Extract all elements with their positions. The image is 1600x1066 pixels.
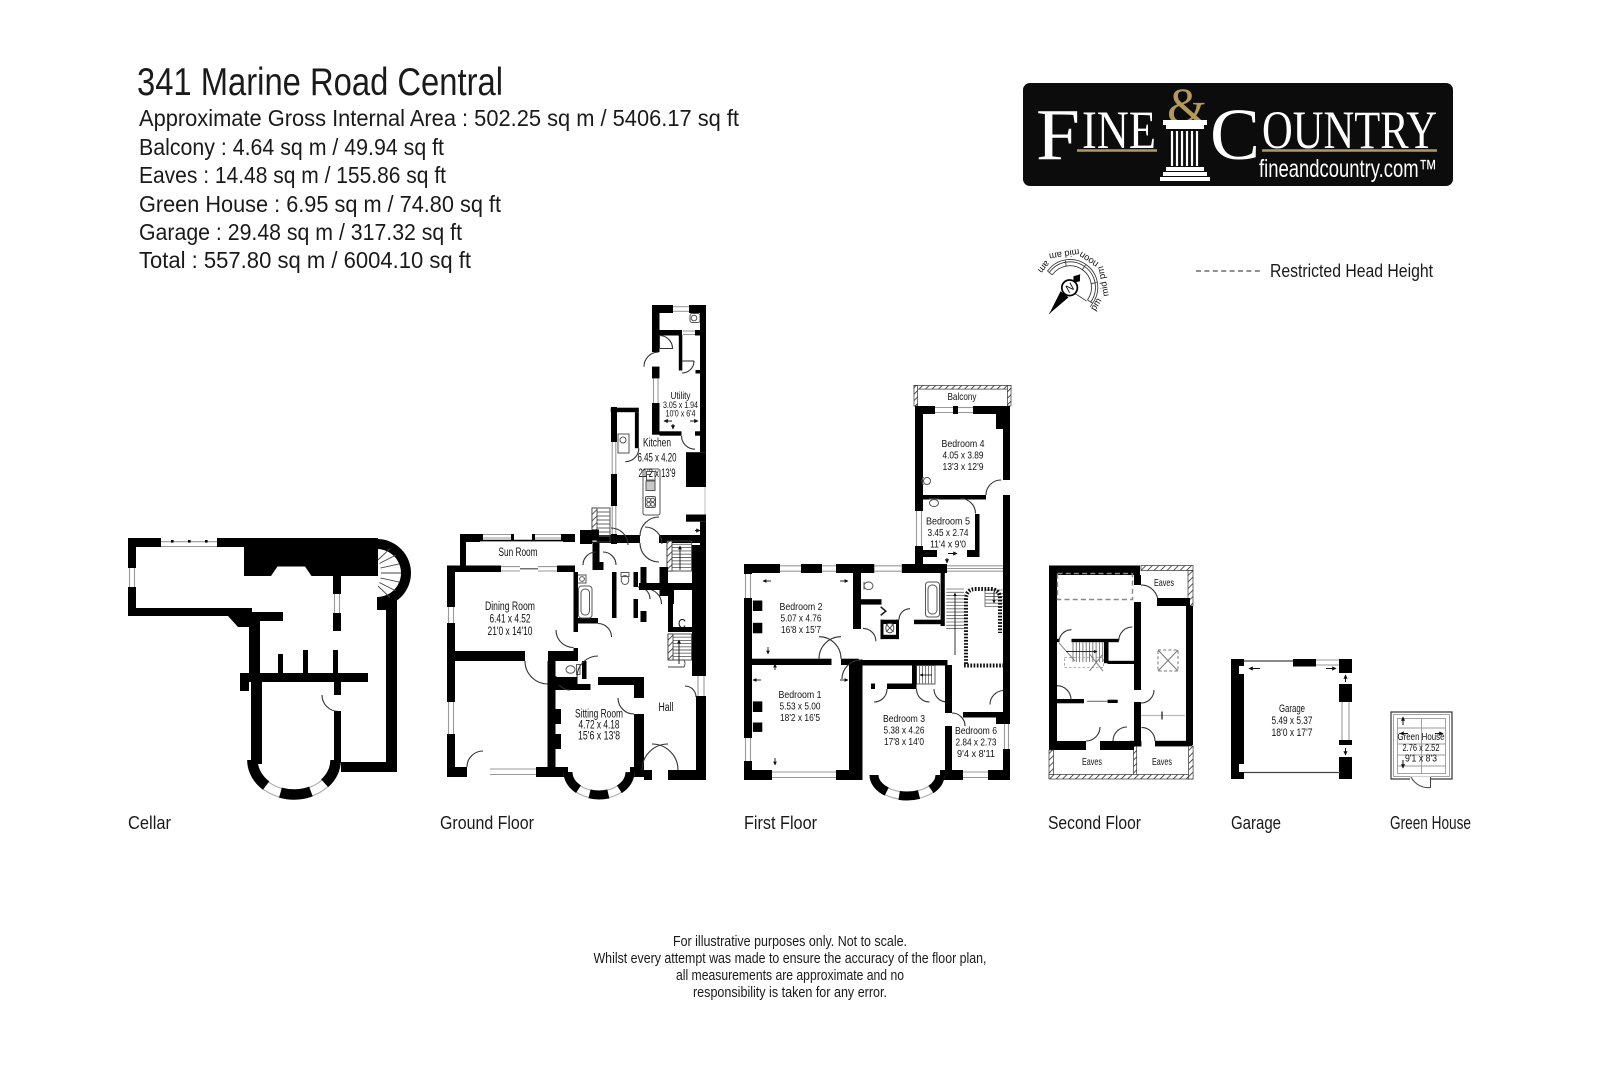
svg-text:Balcony: Balcony (948, 391, 978, 403)
svg-text:10'0 x 6'4: 10'0 x 6'4 (666, 409, 696, 420)
svg-text:3.45 x 2.74: 3.45 x 2.74 (928, 527, 969, 539)
svg-text:21'2 x 13'9: 21'2 x 13'9 (639, 468, 676, 480)
svg-text:18'2 x 16'5: 18'2 x 16'5 (780, 712, 820, 724)
svg-text:Bedroom 5: Bedroom 5 (926, 516, 970, 528)
svg-text:6.45 x 4.20: 6.45 x 4.20 (638, 453, 677, 465)
svg-text:Dining Room: Dining Room (485, 601, 535, 613)
svg-text:Bedroom 6: Bedroom 6 (955, 725, 997, 737)
svg-text:all measurements are approxima: all measurements are approximate and no (676, 968, 904, 984)
svg-text:Balcony : 4.64 sq m / 49.94 sq: Balcony : 4.64 sq m / 49.94 sq ft (139, 134, 445, 160)
svg-text:Restricted Head Height: Restricted Head Height (1270, 261, 1433, 281)
svg-text:15'6 x 13'8: 15'6 x 13'8 (578, 731, 620, 743)
svg-text:Bedroom 4: Bedroom 4 (942, 438, 985, 450)
svg-text:Eaves: Eaves (1082, 756, 1102, 768)
svg-text:Green House : 6.95 sq m / 74.8: Green House : 6.95 sq m / 74.80 sq ft (139, 191, 502, 217)
svg-text:341 Marine Road Central: 341 Marine Road Central (137, 61, 503, 104)
svg-text:11'4 x 9'0: 11'4 x 9'0 (930, 539, 966, 551)
svg-text:5.38 x 4.26: 5.38 x 4.26 (884, 725, 925, 737)
svg-text:Garage: Garage (1279, 703, 1305, 715)
svg-text:Eaves : 14.48 sq m / 155.86 sq: Eaves : 14.48 sq m / 155.86 sq ft (139, 162, 447, 188)
svg-text:21'0 x 14'10: 21'0 x 14'10 (488, 626, 533, 638)
svg-text:Sun Room: Sun Room (499, 547, 538, 559)
svg-text:Eaves: Eaves (1152, 756, 1172, 768)
svg-text:Hall: Hall (659, 702, 674, 714)
svg-text:18'0 x 17'7: 18'0 x 17'7 (1272, 727, 1313, 739)
svg-text:Bedroom 3: Bedroom 3 (883, 713, 925, 725)
svg-text:F: F (1036, 94, 1080, 175)
svg-text:9'1 x 8'3: 9'1 x 8'3 (1405, 754, 1437, 765)
svg-text:C: C (678, 616, 686, 631)
svg-text:Cellar: Cellar (128, 812, 171, 833)
svg-text:Whilst every attempt was made: Whilst every attempt was made to ensure … (594, 951, 987, 967)
svg-text:For illustrative purposes only: For illustrative purposes only. Not to s… (673, 934, 907, 950)
svg-text:16'8 x 15'7: 16'8 x 15'7 (781, 624, 821, 636)
svg-text:Approximate Gross Internal Are: Approximate Gross Internal Area : 502.25… (139, 105, 740, 131)
svg-text:5.49 x 5.37: 5.49 x 5.37 (1272, 715, 1313, 727)
svg-text:2.84 x 2.73: 2.84 x 2.73 (956, 737, 997, 749)
svg-text:9'4 x 8'11: 9'4 x 8'11 (957, 748, 995, 760)
svg-text:Green House: Green House (1390, 812, 1471, 833)
svg-text:17'8 x 14'0: 17'8 x 14'0 (884, 736, 924, 748)
svg-text:Total : 557.80 sq m / 6004.10: Total : 557.80 sq m / 6004.10 sq ft (139, 247, 472, 273)
svg-text:Garage: Garage (1231, 812, 1281, 833)
svg-text:5.53 x 5.00: 5.53 x 5.00 (780, 701, 821, 713)
svg-text:Green House: Green House (1398, 732, 1445, 743)
svg-text:6.41 x 4.52: 6.41 x 4.52 (490, 614, 531, 626)
svg-text:First Floor: First Floor (744, 812, 817, 833)
svg-text:responsibility is taken for an: responsibility is taken for any error. (693, 985, 887, 1001)
svg-text:Ground Floor: Ground Floor (440, 812, 534, 833)
svg-text:Garage : 29.48 sq m / 317.32 s: Garage : 29.48 sq m / 317.32 sq ft (139, 219, 463, 245)
svg-text:13'3 x 12'9: 13'3 x 12'9 (943, 461, 984, 473)
svg-text:Eaves: Eaves (1154, 577, 1174, 589)
svg-text:Bedroom 2: Bedroom 2 (780, 601, 823, 613)
svg-text:Kitchen: Kitchen (643, 438, 671, 450)
svg-text:4.05 x 3.89: 4.05 x 3.89 (943, 450, 984, 462)
svg-text:fineandcountry.com™: fineandcountry.com™ (1259, 155, 1437, 183)
svg-text:C: C (1210, 94, 1260, 175)
svg-text:5.07 x 4.76: 5.07 x 4.76 (781, 613, 822, 625)
svg-text:Second Floor: Second Floor (1048, 812, 1141, 833)
svg-text:Bedroom 1: Bedroom 1 (779, 689, 822, 701)
svg-text:2.76 x 2.52: 2.76 x 2.52 (1403, 743, 1440, 754)
